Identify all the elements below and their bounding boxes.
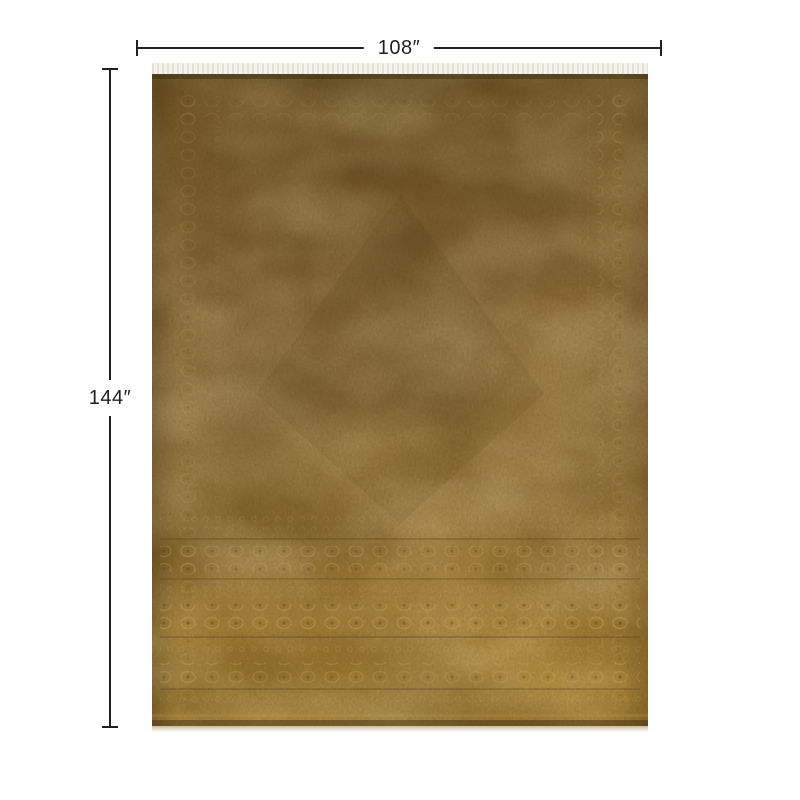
rug-image (152, 63, 648, 732)
width-dimension: 108″ (136, 40, 662, 56)
rug-body (152, 74, 648, 726)
height-dimension-bottom-cap (102, 726, 118, 728)
rug-fringe (152, 63, 648, 74)
rug-bottom-shadow (152, 726, 648, 732)
product-dimension-diagram: 108″ 144″ (0, 0, 800, 800)
width-dimension-left-cap (136, 40, 138, 56)
width-dimension-right-cap (660, 40, 662, 56)
width-dimension-label: 108″ (364, 36, 434, 60)
height-dimension: 144″ (102, 68, 118, 728)
height-dimension-top-cap (102, 68, 118, 70)
height-dimension-label: 144″ (84, 380, 136, 416)
